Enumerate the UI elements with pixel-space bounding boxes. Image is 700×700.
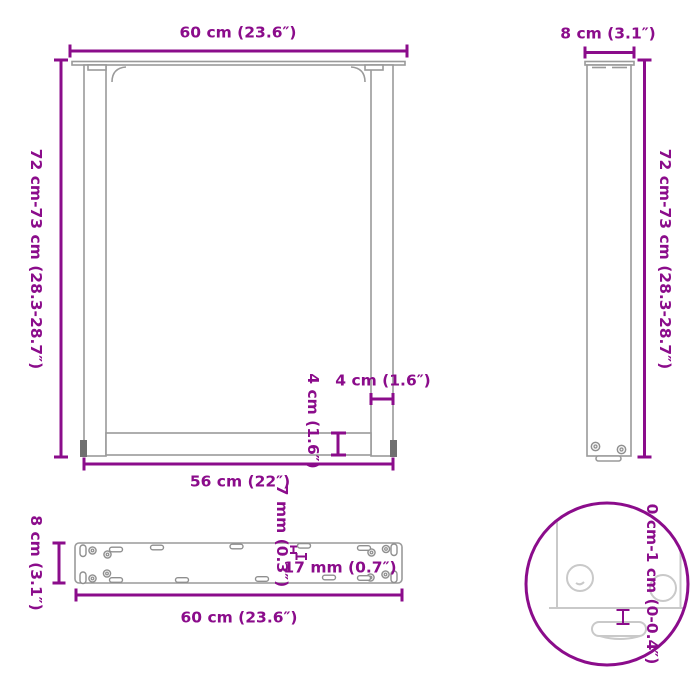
front-width-top-label: 60 cm (23.6″) [179, 25, 296, 41]
side-foot-pad [596, 456, 621, 461]
plate-screw-hole [89, 547, 96, 554]
plate-slot [298, 544, 311, 549]
plate-slot [256, 577, 269, 582]
plate-slot [176, 578, 189, 583]
front-left-tab [88, 65, 106, 70]
plate-depth-left-label: 8 cm (3.1″) [27, 515, 43, 610]
front-right-tab [365, 65, 383, 70]
side-leg [587, 65, 631, 456]
plate-slot [110, 578, 123, 583]
front-right-weld-curve [351, 67, 365, 82]
front-crossbar [106, 433, 371, 455]
front-view-drawing [72, 62, 405, 458]
plate-end-slot [80, 545, 86, 557]
plate-screw-hole [103, 570, 110, 577]
dimension-diagram: 60 cm (23.6″) 72 cm-73 cm (28.3-28.7″) 5… [0, 0, 700, 700]
front-view-dimensions [54, 45, 407, 471]
detail-circle-outline [526, 503, 688, 665]
front-right-foot [390, 440, 397, 457]
detail-view-drawing [526, 500, 690, 665]
diagram-drawing [0, 0, 700, 700]
side-screw-2 [617, 445, 625, 453]
side-view-drawing [585, 62, 634, 462]
side-height-right-label: 72 cm-73 cm (28.3-28.7″) [656, 149, 672, 369]
detail-view-contents [549, 500, 690, 639]
front-leg-width-label: 4 cm (1.6″) [335, 373, 430, 389]
front-left-leg [84, 65, 106, 456]
detail-screw-1-mark [576, 582, 584, 584]
plate-slot [151, 545, 164, 550]
front-top-plate [72, 62, 405, 66]
side-screw-1 [591, 442, 599, 450]
side-depth-top-label: 8 cm (3.1″) [560, 26, 655, 42]
detail-adjustable-height-label: 0 cm-1 cm (0-0.4″) [643, 504, 659, 665]
plate-slot [358, 546, 371, 551]
plate-screw-hole [382, 545, 389, 552]
plate-screw-hole [89, 575, 96, 582]
plate-slot-length-label: 17 mm (0.7″) [283, 560, 396, 576]
front-crossbar-height-label: 4 cm (1.6″) [304, 373, 320, 468]
plate-end-slot [391, 544, 397, 556]
front-right-leg [371, 65, 393, 456]
front-left-weld-curve [112, 67, 126, 82]
front-left-foot [80, 440, 87, 457]
plate-slot [358, 576, 371, 581]
plate-slot [110, 547, 123, 552]
front-height-left-label: 72 cm-73 cm (28.3-28.7″) [27, 149, 43, 369]
plate-slot [230, 544, 243, 549]
plate-width-bottom-label: 60 cm (23.6″) [180, 610, 297, 626]
detail-screw-1 [567, 565, 593, 591]
plate-end-slot [80, 572, 86, 584]
